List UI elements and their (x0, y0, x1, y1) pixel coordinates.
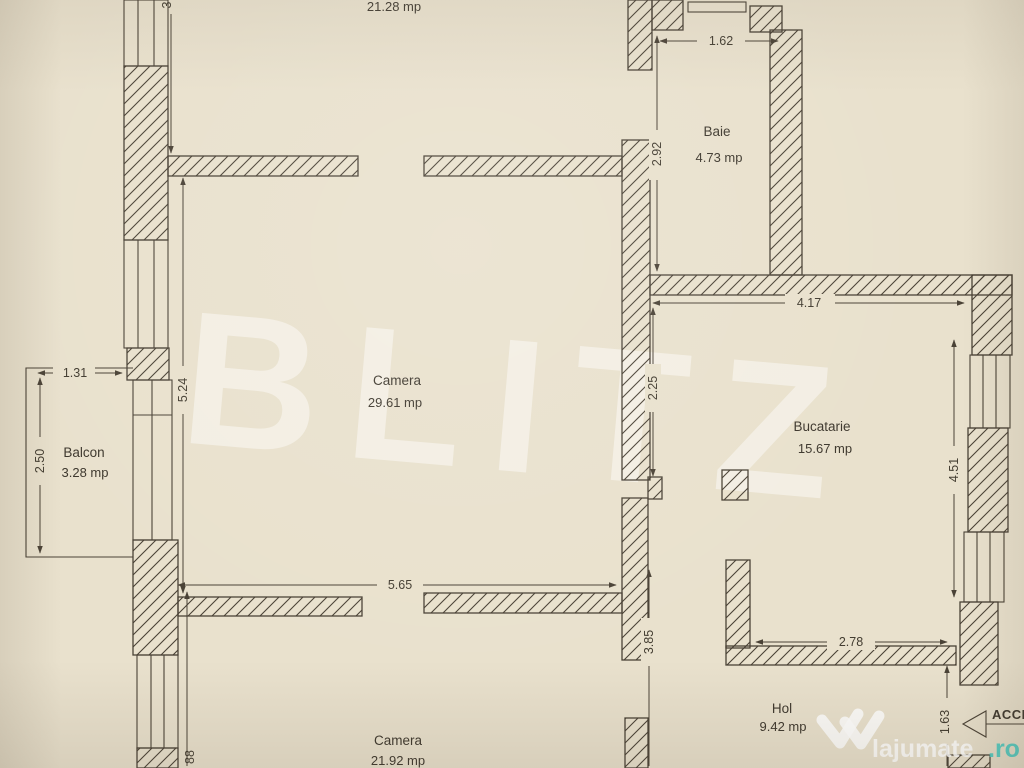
lajumate-logo-icon (822, 714, 879, 744)
dim-camera-mid-width: 5.65 (388, 578, 412, 592)
wall-segment (178, 597, 362, 616)
access-entry: ACCES (963, 707, 1024, 737)
room-camera-mid-name: Camera (373, 373, 422, 388)
room-camera-bottom-name: Camera (374, 733, 423, 748)
dim-access-height: 1.63 (938, 710, 952, 734)
room-balcon-name: Balcon (63, 445, 104, 460)
room-camera-bottom-area: 21.92 mp (371, 753, 425, 768)
wall-segment (648, 477, 662, 499)
wall-segment (625, 718, 648, 768)
room-camera-top-area: 21.28 mp (367, 0, 421, 14)
wall-segment (972, 275, 1012, 355)
room-camera-mid-area: 29.61 mp (368, 395, 422, 410)
lajumate-site-tld: .ro (988, 735, 1020, 763)
room-baie-name: Baie (703, 124, 730, 139)
blitz-watermark-text: BLITZ (174, 272, 868, 542)
dim-bucatarie-left: 2.25 (646, 376, 660, 400)
wall-segment (750, 6, 782, 32)
window (964, 532, 1004, 602)
wall-segment (133, 540, 178, 655)
wall-segment (770, 30, 802, 275)
dim-bucatarie-width: 4.17 (797, 296, 821, 310)
floor-plan-photo: BLITZ (0, 0, 1024, 768)
lajumate-site-name: lajumate (872, 735, 974, 763)
room-bucatarie-name: Bucatarie (793, 419, 850, 434)
window (124, 240, 168, 348)
dim-bucatarie-bottom: 2.78 (839, 635, 863, 649)
wall-segment (424, 593, 622, 613)
wall-segment (628, 0, 652, 70)
wall-segment (137, 748, 178, 768)
wall-segment (168, 156, 358, 176)
room-bucatarie-area: 15.67 mp (798, 441, 852, 456)
dim-balcon-width: 1.31 (63, 366, 87, 380)
dim-bottom-left-partial: 88 (183, 750, 197, 764)
dim-bucatarie-right: 4.51 (947, 458, 961, 482)
wall-segment (726, 560, 750, 648)
room-baie-area: 4.73 mp (696, 150, 743, 165)
floor-plan: BLITZ (0, 0, 1024, 768)
dim-balcon-height: 2.50 (33, 449, 47, 473)
dim-baie-width: 1.62 (709, 34, 733, 48)
wall-segment (127, 348, 169, 380)
access-arrow-icon (963, 711, 986, 737)
watermark-lajumate: lajumate .ro (822, 714, 1020, 763)
room-hol-area: 9.42 mp (760, 719, 807, 734)
wall-segment (652, 0, 683, 30)
watermark-blitz: BLITZ (174, 272, 868, 542)
door-leaf (688, 2, 746, 12)
room-balcon-area: 3.28 mp (62, 465, 109, 480)
wall-segment (722, 470, 748, 500)
window (124, 0, 168, 66)
wall-segment (960, 602, 998, 685)
wall-segment (424, 156, 622, 176)
wall-segment (968, 428, 1008, 532)
access-label: ACCES (992, 707, 1024, 722)
dim-baie-height: 2.92 (650, 142, 664, 166)
wall-segment (124, 66, 168, 240)
window (970, 355, 1010, 428)
window (137, 655, 178, 748)
dim-top-left-partial: 3 (160, 1, 174, 8)
room-hol-name: Hol (772, 701, 792, 716)
dim-hol-wall: 3.85 (642, 630, 656, 654)
wall-segment (650, 275, 1012, 295)
dim-camera-mid-height: 5.24 (176, 378, 190, 402)
wall-segment (622, 140, 650, 480)
